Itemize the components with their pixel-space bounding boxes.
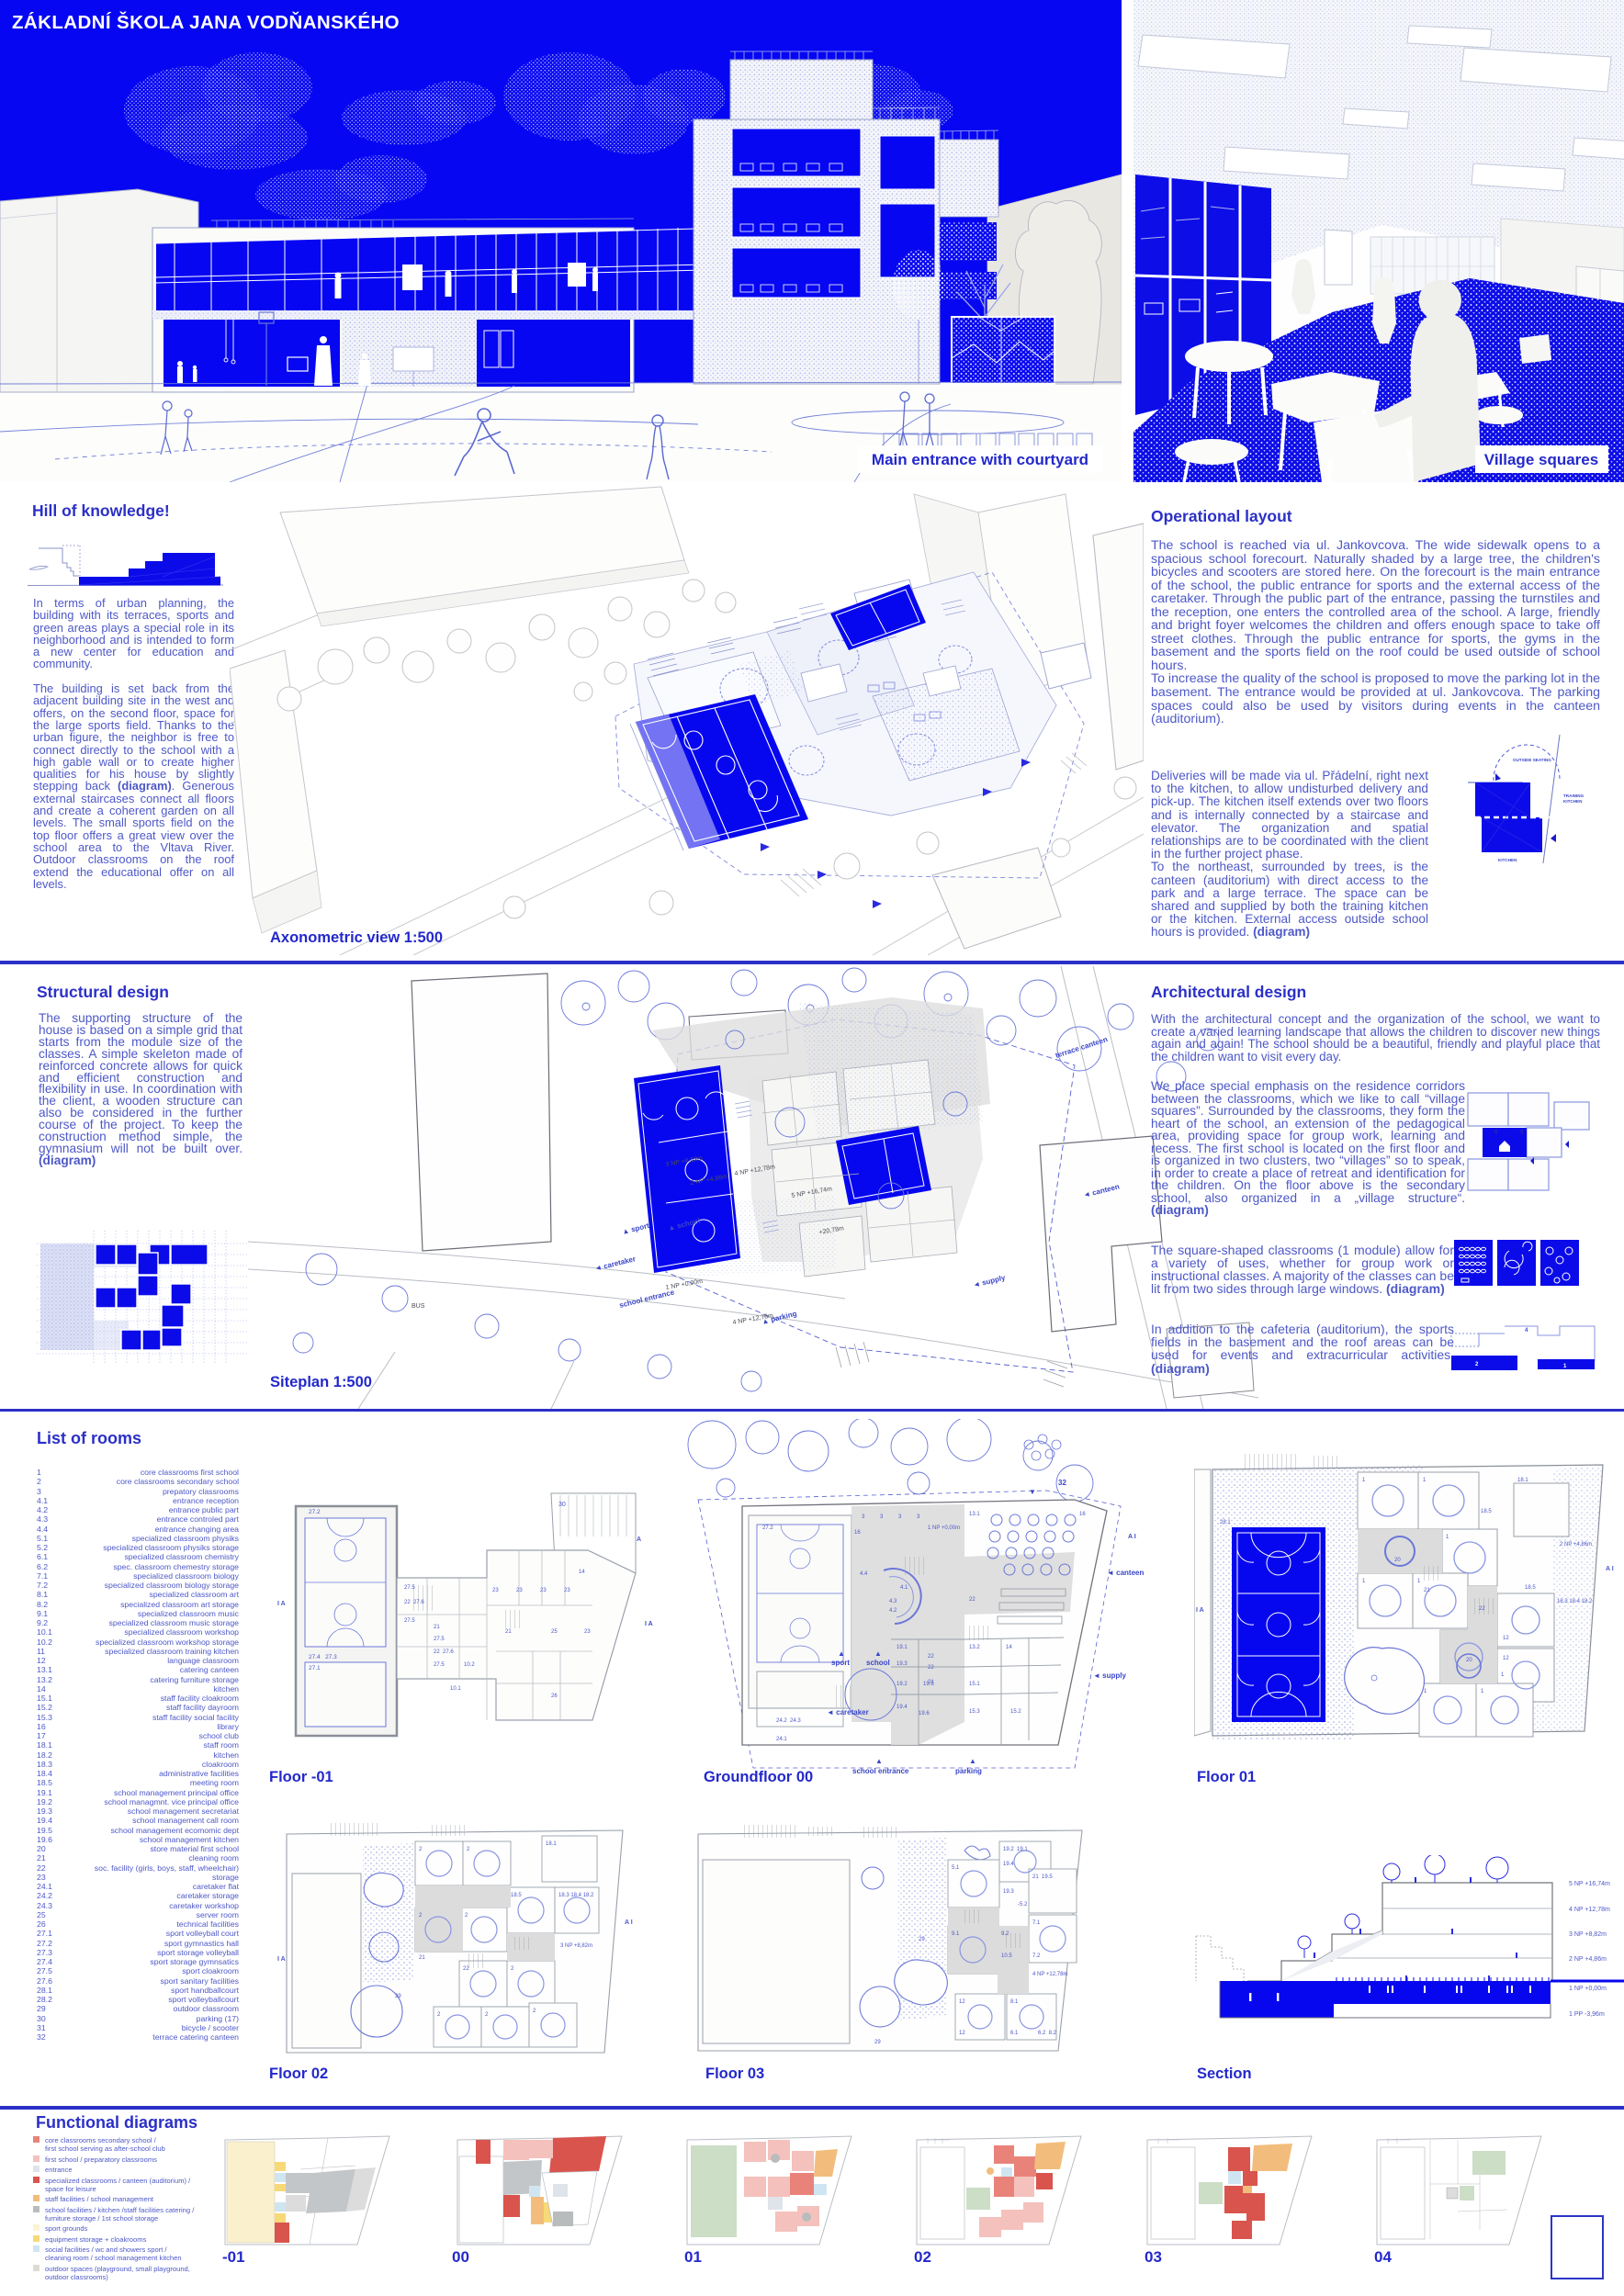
svg-text:23: 23 [564,1588,570,1593]
svg-text:23: 23 [516,1588,523,1593]
svg-text:27.5: 27.5 [434,1662,445,1668]
svg-text:◄ supply: ◄ supply [972,1273,1007,1289]
svg-text:19.4: 19.4 [1003,1862,1014,1867]
svg-text:sport: sport [831,1659,850,1667]
svg-text:◄ caretaker: ◄ caretaker [827,1708,869,1716]
svg-text:27.2: 27.2 [309,1509,321,1515]
svg-text:23: 23 [584,1629,591,1635]
svg-text:4: 4 [1525,1328,1528,1334]
svg-text:22 27.6: 22 27.6 [434,1649,454,1655]
svg-text:27.5: 27.5 [404,1585,415,1591]
svg-text:20: 20 [1466,1658,1472,1663]
svg-text:4 NP +12,78m: 4 NP +12,78m [1569,1907,1610,1913]
svg-text:9.1: 9.1 [952,1931,960,1937]
svg-text:12: 12 [959,1999,965,2005]
svg-text:6.2 8.2: 6.2 8.2 [1038,2031,1057,2036]
svg-text:18.5: 18.5 [1481,1509,1492,1514]
svg-text:19.4: 19.4 [897,1705,908,1710]
svg-text:22: 22 [969,1597,976,1603]
svg-text:14: 14 [579,1570,585,1575]
svg-text:7.1: 7.1 [1032,1920,1041,1926]
svg-text:▲: ▲ [875,1757,883,1765]
svg-text:18.1: 18.1 [1517,1478,1528,1483]
svg-text:1 PP -3,96m: 1 PP -3,96m [1569,2011,1605,2018]
svg-text:28.1: 28.1 [1220,1520,1231,1525]
svg-text:▲: ▲ [874,1649,882,1658]
svg-text:18.3 18.4 18.2: 18.3 18.4 18.2 [1557,1599,1593,1604]
svg-text:4.4: 4.4 [860,1571,868,1577]
svg-text:29: 29 [395,1994,401,1999]
svg-text:6.1: 6.1 [1010,2031,1019,2036]
svg-text:12: 12 [959,2031,965,2036]
svg-text:12: 12 [1503,1636,1509,1641]
svg-text:2 NP +4,86m: 2 NP +4,86m [1569,1956,1607,1963]
svg-text:13.2: 13.2 [969,1645,980,1650]
svg-text:school entrance: school entrance [852,1767,909,1775]
svg-text:1 NP +0,00m: 1 NP +0,00m [1569,1986,1607,1992]
svg-text:25: 25 [551,1629,558,1635]
svg-text:I A: I A [277,1956,286,1963]
svg-text:19.6: 19.6 [919,1711,930,1716]
svg-text:A I: A I [625,1919,633,1926]
svg-text:5.1: 5.1 [952,1865,960,1871]
svg-text:30: 30 [558,1502,566,1508]
svg-text:4.3: 4.3 [889,1599,897,1604]
svg-text:19.2: 19.2 [897,1682,908,1687]
svg-text:19.3: 19.3 [1003,1889,1014,1895]
svg-text:22: 22 [1479,1606,1485,1612]
svg-text:I A: I A [277,1601,286,1607]
svg-text:22: 22 [928,1654,934,1660]
svg-text:parking: parking [955,1767,982,1775]
svg-text:Main entrance with courtyard: Main entrance with courtyard [872,451,1088,468]
svg-text:13.1: 13.1 [969,1512,980,1517]
svg-text:10.2: 10.2 [464,1662,475,1668]
svg-text:▲ sport: ▲ sport [621,1221,650,1236]
svg-text:18.5: 18.5 [511,1893,522,1898]
svg-text:7.2: 7.2 [1032,1953,1041,1959]
svg-text:▲: ▲ [969,1757,976,1765]
svg-text:-5.2: -5.2 [1018,1902,1028,1908]
svg-text:21: 21 [505,1629,512,1635]
svg-text:14: 14 [1006,1645,1012,1650]
svg-text:12: 12 [1503,1656,1509,1661]
svg-text:3 NP +8,82m: 3 NP +8,82m [560,1943,592,1949]
svg-text:29: 29 [874,2040,881,2045]
svg-text:21 19.5: 21 19.5 [1032,1874,1053,1880]
svg-text:9.2: 9.2 [1001,1931,1009,1937]
svg-text:18.1: 18.1 [546,1841,557,1847]
svg-text:1 NP +0,00m: 1 NP +0,00m [928,1525,960,1531]
svg-text:27.2: 27.2 [762,1525,773,1531]
svg-text:27.5: 27.5 [404,1618,415,1624]
svg-text:20: 20 [1394,1558,1401,1563]
svg-text:KITCHEN: KITCHEN [1563,799,1583,804]
svg-text:27.5: 27.5 [434,1637,445,1642]
svg-text:15.3: 15.3 [969,1709,980,1715]
svg-text:16: 16 [1079,1512,1086,1517]
svg-text:TRAINING: TRAINING [1563,793,1585,798]
svg-text:15.1: 15.1 [969,1682,980,1687]
svg-text:22 27.6: 22 27.6 [404,1600,424,1605]
svg-text:32: 32 [1058,1479,1066,1487]
svg-text:21: 21 [928,1680,934,1685]
svg-text:22: 22 [928,1665,934,1671]
svg-text:18.3 18.4 18.2: 18.3 18.4 18.2 [558,1893,594,1898]
svg-text:I A: I A [1196,1607,1204,1614]
svg-text:A I: A I [637,1536,643,1543]
svg-text:1 NP +0,00m: 1 NP +0,00m [665,1278,704,1291]
svg-text:22: 22 [463,1966,469,1972]
svg-text:I A: I A [645,1621,653,1627]
svg-text:21: 21 [419,1955,425,1961]
svg-text:23: 23 [540,1588,547,1593]
svg-text:OUTSIDE SEATING: OUTSIDE SEATING [1513,758,1551,762]
svg-text:19.3: 19.3 [897,1661,908,1667]
svg-text:ZÁKLADNÍ ŠKOLA JANA VODŇANSKÉH: ZÁKLADNÍ ŠKOLA JANA VODŇANSKÉHO [12,11,400,33]
svg-text:21: 21 [1424,1588,1430,1593]
svg-text:5 NP +16,74m: 5 NP +16,74m [1569,1881,1610,1887]
svg-text:Village squares: Village squares [1484,451,1598,468]
svg-text:27.4 27.3: 27.4 27.3 [309,1654,337,1660]
svg-text:15.2: 15.2 [1010,1709,1021,1715]
svg-text:▼: ▼ [1029,1488,1036,1496]
svg-text:KITCHEN: KITCHEN [1498,858,1517,862]
svg-text:19.1: 19.1 [897,1645,908,1650]
svg-text:3 NP +8,82m: 3 NP +8,82m [1569,1931,1607,1938]
svg-text:4.1: 4.1 [900,1585,908,1591]
svg-text:21: 21 [434,1625,440,1630]
svg-text:18.5: 18.5 [1525,1585,1536,1591]
svg-text:A I: A I [1128,1534,1136,1540]
svg-text:27.1: 27.1 [309,1665,321,1671]
svg-text:16: 16 [854,1530,861,1536]
svg-text:8.1: 8.1 [1010,1999,1019,2005]
svg-text:▲: ▲ [838,1649,845,1658]
svg-text:2 NP +4,86m: 2 NP +4,86m [1560,1542,1592,1548]
svg-text:23: 23 [492,1588,499,1593]
svg-text:10.5: 10.5 [1001,1953,1012,1959]
svg-text:24.2 24.3: 24.2 24.3 [776,1718,801,1724]
svg-text:19.2 19.1: 19.2 19.1 [1003,1847,1028,1852]
svg-text:BUS: BUS [412,1303,425,1310]
svg-text:◄ canteen: ◄ canteen [1107,1569,1144,1577]
svg-text:29: 29 [919,1937,925,1942]
svg-text:A I: A I [1606,1566,1614,1572]
svg-text:24.1: 24.1 [776,1737,787,1742]
svg-text:4.2: 4.2 [889,1608,897,1614]
svg-text:26: 26 [551,1694,558,1699]
svg-text:school: school [866,1659,890,1667]
svg-text:4 NP +12,78m: 4 NP +12,78m [1032,1972,1067,1977]
svg-text:10.1: 10.1 [450,1686,461,1692]
svg-text:◄ supply: ◄ supply [1093,1671,1126,1680]
